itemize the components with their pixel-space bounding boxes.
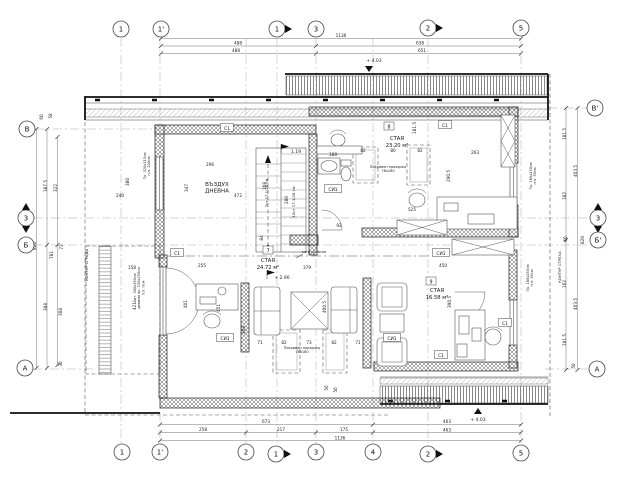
dim-label: 673: [262, 419, 270, 424]
axis-label: 1': [157, 448, 163, 456]
section-arrow-icon: [284, 450, 291, 458]
axis-label: 5: [519, 24, 523, 32]
dim-label: 255: [198, 263, 206, 268]
level-triangle-icon: [365, 66, 373, 72]
dim-label: 58: [48, 113, 53, 119]
axis-label: 1: [120, 448, 124, 456]
axis-label: 3: [314, 25, 318, 33]
desk-room9: [455, 310, 485, 360]
sofa: [331, 287, 357, 333]
floor-plan-drawing: 1136488638488651673463258217175463113682…: [0, 0, 625, 482]
level-label: + 2.90: [274, 275, 289, 281]
balcony-door-arc: [166, 268, 199, 301]
roof-windows: [273, 145, 430, 373]
dim-label: 403.5: [573, 165, 578, 177]
dim-label: 820: [580, 236, 585, 244]
dim-label: 638: [416, 41, 424, 46]
dim-label: 463: [443, 419, 451, 424]
room-area: 16.58 м²: [426, 295, 449, 301]
level-label: + 4.03: [470, 417, 485, 423]
dim-label: 240: [116, 193, 124, 198]
armchair: [377, 338, 407, 366]
roof-window: [323, 330, 347, 373]
dim-label: 181.5: [562, 128, 567, 140]
dim-label: 188: [329, 152, 337, 157]
tag-label: СИ1: [220, 336, 229, 342]
armchair: [377, 283, 407, 311]
tag-label: С1: [438, 353, 444, 359]
dim-label: 82: [417, 148, 423, 153]
chair: [330, 130, 346, 146]
balcony: [86, 246, 160, 374]
dim-label: 92: [336, 223, 342, 228]
dim-label: 30: [58, 361, 63, 367]
dim-label: 296: [206, 162, 214, 167]
dim-label: 1136: [336, 33, 347, 38]
tag-label: СИ1: [387, 336, 396, 342]
dim-label: 217: [277, 427, 285, 432]
room-name: СТАЯ: [261, 258, 275, 264]
tag-label: С1: [502, 321, 508, 327]
axis-label: В: [25, 125, 30, 133]
section-arrow-icon: [285, 25, 292, 33]
wardrobe: [501, 115, 515, 167]
room-name: СТАЯ: [390, 136, 404, 142]
axis-label: 3: [314, 448, 318, 456]
desk-room8: [437, 197, 517, 229]
dim-label: 258: [199, 427, 207, 432]
axis-label: 1: [119, 25, 123, 33]
dim-label: 82: [281, 340, 287, 345]
office-chair: [484, 327, 502, 345]
section-arrow-icon: [436, 24, 443, 32]
axis-label: Б': [595, 236, 602, 244]
room-label-9: 9 СТАЯ 16.58 м²: [426, 277, 449, 301]
room-area: 23.20 м²: [386, 143, 409, 149]
axis-label: А: [23, 364, 28, 372]
office-chair: [203, 311, 221, 328]
dim-label: 181.5: [412, 122, 417, 134]
dim-label: 181.5: [562, 334, 567, 346]
dim-label: 525: [408, 207, 416, 212]
level-triangle-icon: [474, 408, 482, 414]
dim-label: 268: [241, 326, 246, 334]
dim-label: 322: [53, 184, 58, 192]
dim-label: 280: [284, 196, 289, 204]
bathroom-fixtures: [317, 146, 362, 181]
dim-label: 387.5: [43, 180, 48, 192]
dim-label: 73: [59, 244, 64, 250]
annotation-label: Пр. 320х315смп.п. 200см: [143, 152, 151, 179]
room-number: 7: [266, 248, 269, 254]
annotation-label: Покривен прозорец78х160: [370, 165, 407, 173]
dim-label: 263: [471, 150, 479, 155]
axis-label: 3: [596, 214, 600, 222]
dim-label: 60: [563, 236, 568, 242]
dim-label: 73: [306, 340, 312, 345]
level-label: 1.19: [291, 149, 301, 155]
tag-label: СИ1: [436, 251, 445, 257]
room-number: 9: [429, 279, 432, 285]
dim-label: 82: [331, 340, 337, 345]
dim-label: 82: [360, 148, 366, 153]
window-left-livingroom: [156, 157, 163, 210]
sofa: [254, 287, 280, 335]
dim-label: 403.5: [573, 298, 578, 310]
dim-label: 175: [340, 427, 348, 432]
dim-label: 347: [184, 184, 189, 192]
dim-label: 379: [303, 265, 311, 270]
annotation-label: КОНТУР СТРЕХА: [557, 251, 562, 283]
dim-label: 60: [39, 114, 44, 120]
stair-direction-arrow-icon: [265, 155, 271, 163]
axis-label: Б: [24, 241, 29, 249]
axis-label: 2: [244, 448, 248, 456]
axis-label: 1': [158, 25, 164, 33]
dim-label: 781: [49, 251, 54, 259]
balcony-railing: [99, 246, 111, 374]
dim-label: 7ст 17.1/28 см: [264, 179, 269, 208]
floor-plan-page: 1136488638488651673463258217175463113682…: [0, 0, 625, 482]
dim-label: 472: [234, 193, 242, 198]
dim-label: 162: [562, 280, 567, 288]
room-number: 8: [387, 124, 390, 130]
dim-label: 308: [58, 308, 63, 316]
dim-label: 56: [324, 385, 329, 391]
axis-label: А: [595, 365, 600, 373]
dim-label: 451: [216, 304, 221, 312]
tag-label: С1: [442, 123, 448, 129]
axis-label: 2: [426, 24, 430, 32]
annotation-label: контур било: [302, 249, 327, 254]
axis-label: 1: [274, 450, 278, 458]
dim-label: 400.5: [322, 301, 327, 313]
room-label-8: 8 СТАЯ 23.20 м²: [384, 122, 408, 149]
dim-label: 71: [257, 340, 263, 345]
dim-label: 388: [43, 303, 48, 311]
axis-label: 3: [24, 214, 28, 222]
room-label-7: 7 СТАЯ 24.72 м²: [257, 246, 280, 271]
section-arrow-icon: [22, 226, 30, 233]
tag-label: СИ1: [328, 187, 337, 193]
axis-label: В': [592, 104, 599, 112]
dim-label: 50: [571, 363, 576, 369]
level-label: + 4.03: [366, 58, 381, 64]
dim-label: 401: [183, 300, 188, 308]
dim-label: 380: [125, 178, 130, 186]
dim-label: 50: [333, 387, 338, 393]
annotation-label: Вит. 300х350смделимо вр. 150х250смп.п. 0…: [133, 267, 145, 309]
annotation-label: ВЪЗДУХДНЕВНА: [205, 182, 229, 195]
annotation-label: Покривен прозорец78х160: [284, 346, 321, 354]
dim-label: 71: [355, 340, 361, 345]
axis-label: 4: [371, 448, 376, 456]
balcony-vitrine: [160, 267, 166, 335]
room-area: 24.72 м²: [257, 265, 280, 271]
office-chair: [408, 189, 426, 207]
section-arrow-icon: [22, 203, 30, 210]
dim-label: 463: [443, 428, 451, 433]
section-arrow-icon: [436, 450, 443, 458]
wardrobe: [452, 239, 514, 255]
axis-label: 2: [426, 450, 430, 458]
side-table: [380, 314, 404, 332]
dim-label: 290.5: [446, 170, 451, 182]
dim-label: 158: [128, 265, 136, 270]
dim-label: 84: [259, 235, 264, 241]
dim-label: 182: [562, 192, 567, 200]
annotation-label: Пр. 180х250смп.п. 50см: [526, 264, 534, 291]
annotation-label: Пр. 180х250смп.п. 50см: [529, 162, 537, 189]
dim-label: 651: [418, 48, 426, 53]
annotation-label: КОНТУР СГРАДА: [84, 249, 89, 281]
dim-label: 450: [439, 263, 447, 268]
axis-label: 1: [275, 25, 279, 33]
section-arrow-icon: [594, 203, 602, 210]
axis-label: 5: [519, 449, 523, 457]
dim-label: 488: [234, 41, 242, 46]
dim-label: 488: [232, 48, 240, 53]
tag-label: С1: [174, 251, 180, 257]
dim-label: 1136: [335, 436, 346, 441]
tag-label: С1: [224, 126, 230, 132]
wardrobe: [397, 220, 447, 235]
room-name: СТАЯ: [430, 288, 444, 294]
dim-label: 10ст 17.1/28 см: [291, 186, 296, 217]
